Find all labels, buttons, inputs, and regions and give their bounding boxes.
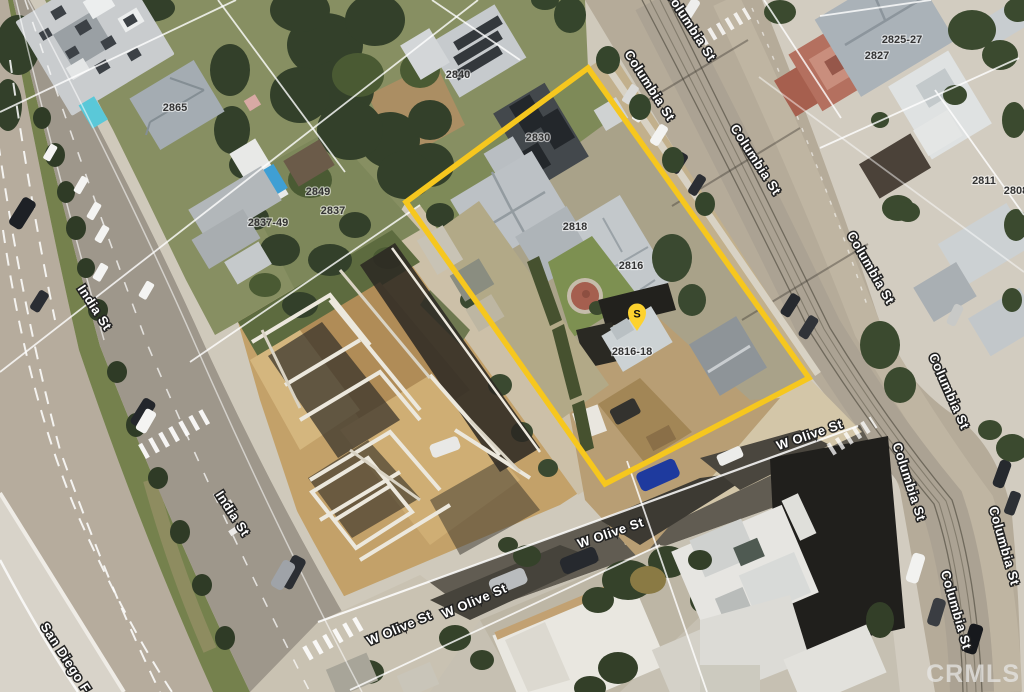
svg-text:S: S [633,309,640,321]
svg-text:2837-49: 2837-49 [248,217,288,229]
svg-text:2818: 2818 [563,221,587,233]
svg-text:2827: 2827 [865,50,889,62]
svg-text:2830: 2830 [526,132,550,144]
svg-text:2811: 2811 [972,175,996,187]
svg-text:2816-18: 2816-18 [612,346,652,358]
svg-text:2808: 2808 [1004,185,1024,197]
svg-text:2865: 2865 [163,102,187,114]
svg-text:2849: 2849 [306,186,330,198]
svg-text:2825-27: 2825-27 [882,34,922,46]
svg-text:2840: 2840 [446,69,470,81]
svg-text:2816: 2816 [619,260,643,272]
svg-text:CRMLS: CRMLS [926,660,1020,688]
svg-text:2837: 2837 [321,205,345,217]
